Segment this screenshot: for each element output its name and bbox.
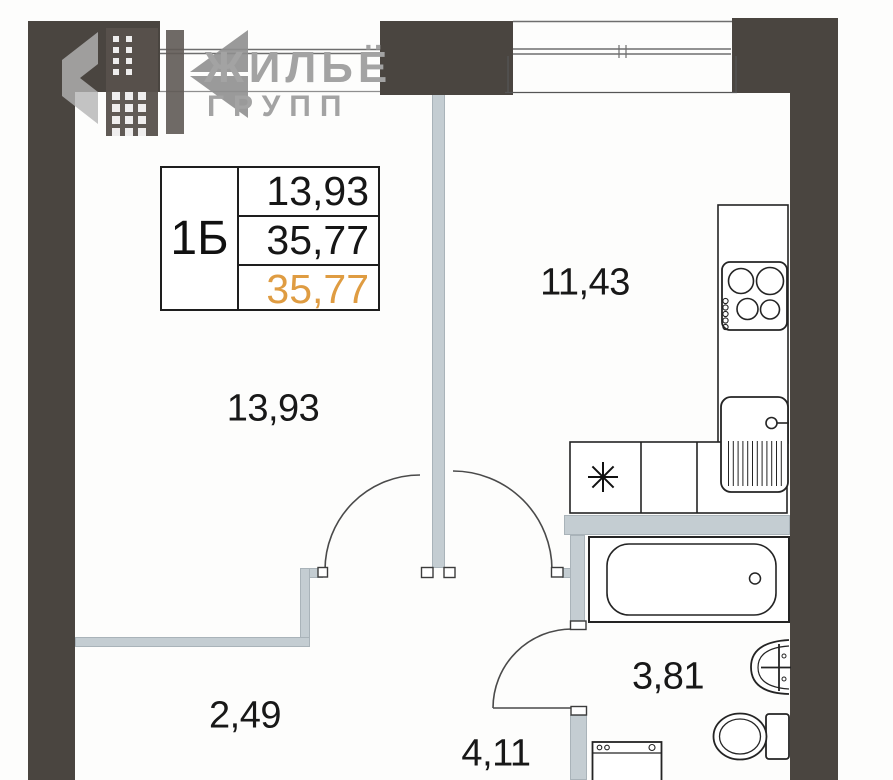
brand-name: ЖИЛЬЁ (204, 46, 392, 90)
kitchen-door-arc (453, 471, 552, 570)
floor-plan-canvas: ЖИЛЬЁ ГРУПП 1Б 13,93 35,77 35,77 13,93 1… (0, 0, 893, 780)
washing-machine-icon (593, 742, 662, 780)
unit-info-table: 1Б 13,93 35,77 35,77 (160, 166, 380, 311)
bathtub-icon (589, 537, 789, 622)
unit-area-row-highlighted: 35,77 (239, 264, 378, 313)
unit-area-row: 35,77 (239, 215, 378, 264)
room-area-label-corridor: 4,11 (461, 733, 530, 776)
bathroom-door-arc (493, 629, 572, 708)
balcony-window (505, 22, 737, 94)
dishwasher-icon (588, 462, 618, 492)
room-area-label-living: 13,93 (227, 388, 320, 431)
brand-subname: ГРУПП (207, 92, 350, 122)
room-area-label-hallway: 2,49 (209, 695, 281, 738)
unit-area-row: 13,93 (239, 168, 378, 215)
stove-icon (722, 262, 787, 330)
room-area-label-kitchen: 11,43 (540, 262, 630, 305)
unit-type-label: 1Б (162, 168, 239, 309)
washbasin-icon (751, 640, 791, 694)
kitchen-sink-icon (721, 397, 789, 492)
toilet-icon (714, 714, 790, 760)
unit-area-rows: 13,93 35,77 35,77 (239, 168, 378, 309)
door-jamb-caps (318, 568, 587, 716)
living-room-door-arc (325, 475, 420, 570)
room-area-label-bathroom: 3,81 (632, 656, 704, 699)
